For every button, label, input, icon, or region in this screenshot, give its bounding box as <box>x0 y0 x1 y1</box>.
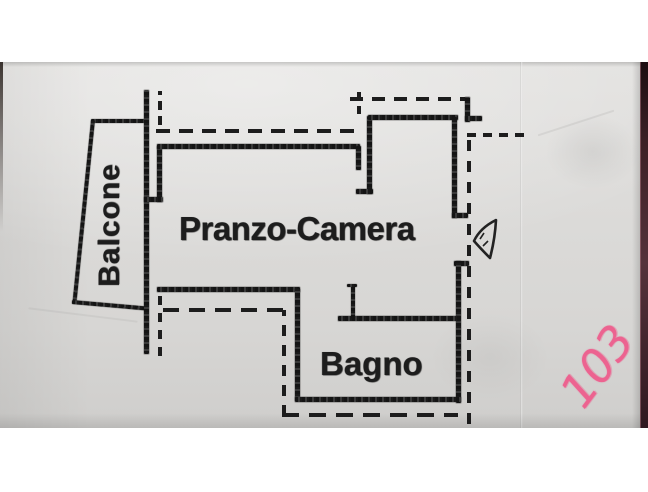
wall-segment <box>157 146 162 202</box>
dashed-wall-line <box>357 88 361 114</box>
wall-segment <box>465 116 482 121</box>
door-jamb-segment <box>347 284 357 287</box>
paper-shading <box>545 114 640 189</box>
paper-right-edge-shadow <box>632 62 640 428</box>
wall-segment <box>144 90 149 354</box>
paper-shading <box>430 312 550 402</box>
wall-segment <box>73 120 95 302</box>
wall-segment <box>368 115 458 120</box>
wall-segment <box>72 300 148 311</box>
paper-bottom-edge-shadow <box>0 413 648 428</box>
wall-segment <box>295 289 300 401</box>
wall-segment <box>367 116 372 194</box>
wall-segment <box>356 146 361 170</box>
door-swing-icon <box>470 215 502 263</box>
wall-segment <box>295 397 461 402</box>
dashed-wall-line <box>158 91 162 125</box>
letterbox-top <box>0 0 648 62</box>
wall-segment <box>356 189 373 194</box>
wall-segment <box>338 316 460 321</box>
room-label-bagno: Bagno <box>320 345 423 383</box>
wall-segment <box>91 119 148 123</box>
room-label-pranzo-camera: Pranzo-Camera <box>179 210 415 248</box>
paper-top-edge-shadow <box>0 62 648 67</box>
letterbox-bottom <box>0 428 648 492</box>
screenshot-root: Balcone Pranzo-Camera Bagno 103 <box>0 0 648 492</box>
table-surface-right-edge <box>640 62 648 428</box>
wall-segment <box>144 197 163 202</box>
dashed-boundary-line <box>158 292 162 356</box>
dashed-wall-line <box>467 133 524 137</box>
dashed-boundary-line <box>467 140 471 424</box>
dashed-boundary-line <box>163 308 286 312</box>
floor-plan-photo: Balcone Pranzo-Camera Bagno 103 <box>0 62 648 428</box>
door-jamb-segment <box>351 285 355 318</box>
room-label-balcone: Balcone <box>93 155 127 295</box>
photo-left-dark-edge <box>0 62 3 232</box>
dashed-boundary-line <box>282 310 286 416</box>
dashed-wall-line <box>350 97 466 101</box>
wall-segment <box>456 261 461 403</box>
wall-segment <box>157 287 300 292</box>
wall-segment <box>452 117 457 218</box>
dashed-wall-line <box>156 129 358 133</box>
wall-segment <box>452 213 468 218</box>
paper-crease <box>28 307 137 322</box>
wall-segment <box>157 144 360 149</box>
